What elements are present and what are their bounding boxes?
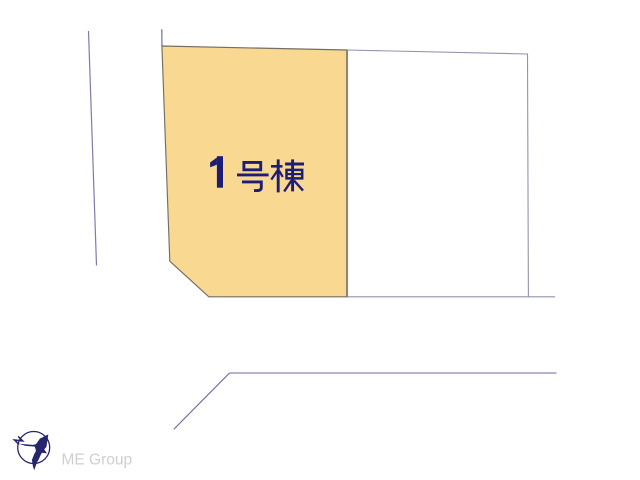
svg-text:ME Group: ME Group: [62, 452, 133, 469]
